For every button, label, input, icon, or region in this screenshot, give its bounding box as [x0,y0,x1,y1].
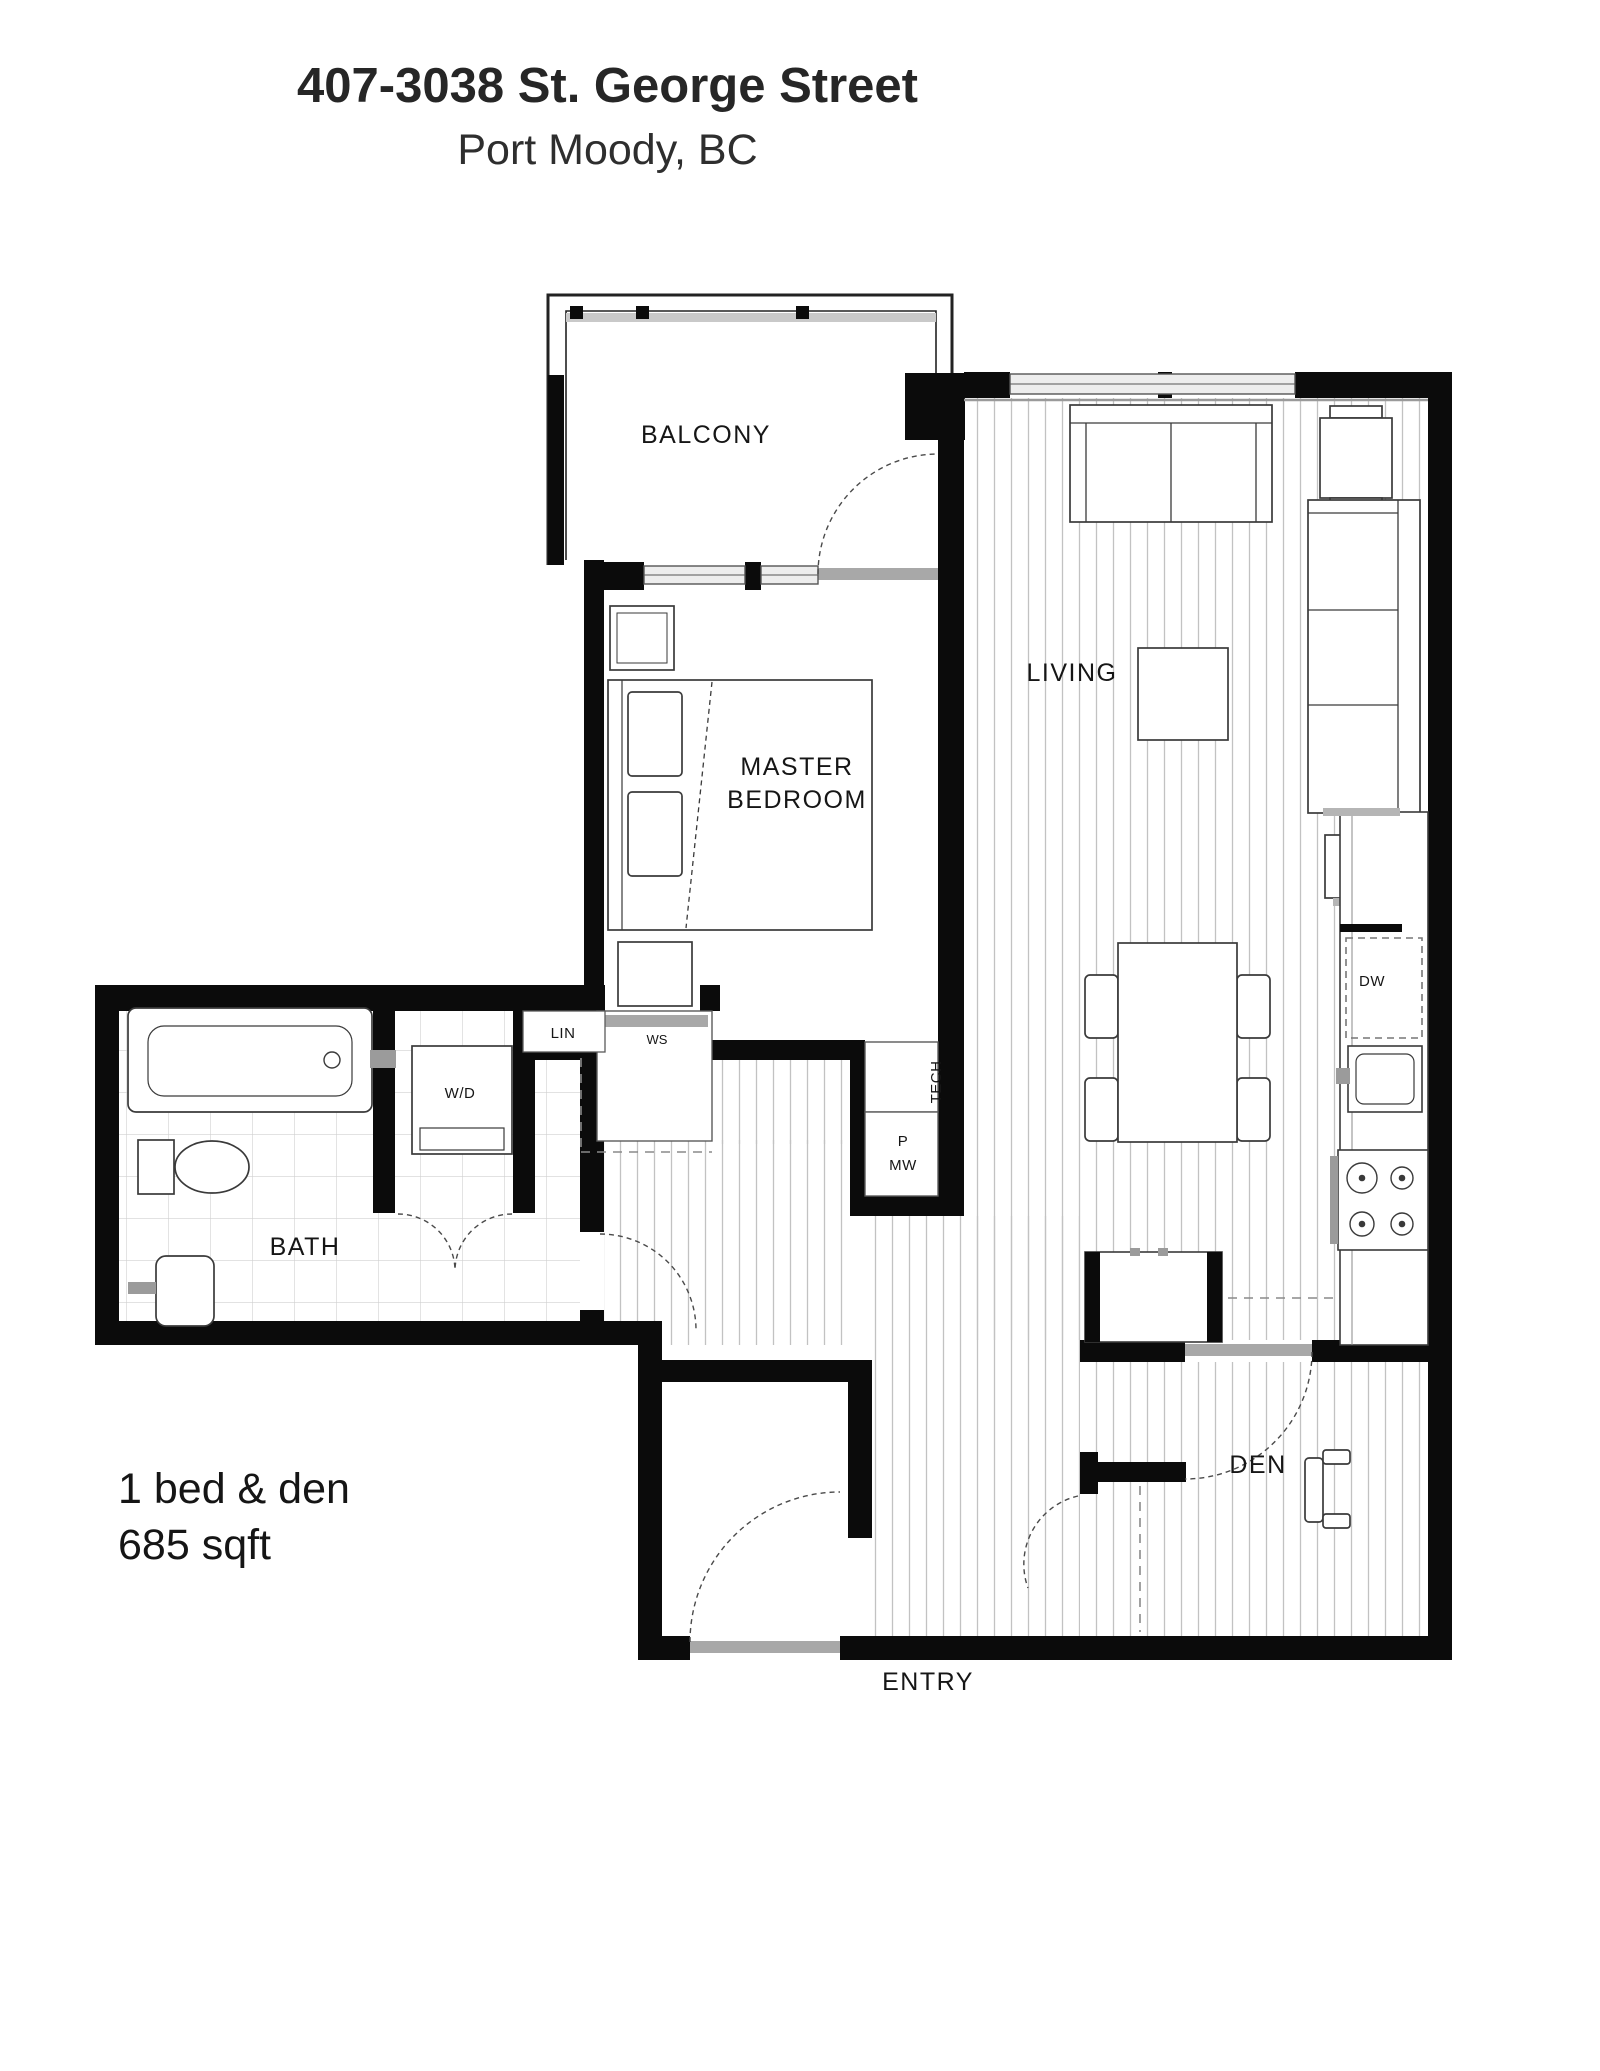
kitchen-sink-basin [1356,1054,1414,1104]
hallway-floor-upper [712,1060,848,1144]
dining-table [1118,943,1237,1142]
armchair [1320,418,1392,498]
den-floor [1090,1362,1428,1636]
ws-desk [604,1015,708,1027]
armchair-arm [1330,406,1382,418]
bedroom-bench [618,942,692,1006]
summary-sqft: 685 sqft [118,1518,350,1574]
entry-corridor-floor [872,1216,1080,1636]
coffee-table [1138,648,1228,740]
bathroom-sink [156,1256,214,1326]
bed-pillow [628,692,682,776]
summary-beds: 1 bed & den [118,1462,350,1518]
den-chair-arm [1323,1514,1350,1528]
floor-plan-drawing: BALCONY LIVING MASTER BEDROOM BATH DEN E… [0,0,1600,2071]
linen-label: LIN [551,1025,576,1042]
entry-door-slab [690,1641,840,1653]
hallway-floor [604,1140,848,1345]
sectional-sofa [1308,500,1420,813]
listing-summary: 1 bed & den 685 sqft [118,1462,350,1574]
living-floor [964,398,1340,1340]
entry-door-arc [690,1492,840,1642]
bathtub-basin [148,1026,352,1096]
sink-faucet [128,1282,156,1294]
bathtub-faucet [370,1050,396,1068]
stove [1338,1150,1428,1250]
balcony-door-slab [818,568,938,580]
balcony-living-pier [905,373,965,440]
washer-dryer-label: W/D [445,1085,476,1102]
dining-chair [1237,975,1270,1038]
dining-chair [1237,1078,1270,1141]
bed-pillow [628,792,682,876]
balcony-left-wall [548,375,564,565]
den-door-slab [1185,1344,1312,1356]
bathtub-drain [324,1052,340,1068]
toilet-bowl [175,1141,249,1193]
ws-label: WS [647,1032,668,1047]
oven-handle [1330,1156,1338,1244]
den-chair-arm [1323,1450,1350,1464]
balcony-door-arc [818,454,938,574]
pantry-mw-closet [865,1112,938,1196]
master-bedroom-label-line1: MASTER [740,753,853,781]
ws-nook [597,1011,712,1141]
pantry-label-line1: P [898,1133,909,1150]
right-exterior-wall [1428,372,1452,1660]
living-label: LIVING [1027,659,1118,687]
balcony-label: BALCONY [641,421,771,449]
toilet-tank [138,1140,174,1194]
dining-chair [1085,1078,1118,1141]
fridge [1085,1252,1222,1342]
bath-label: BATH [270,1233,341,1261]
pantry-label-line2: MW [889,1157,917,1174]
floor-plan-page: 407-3038 St. George Street Port Moody, B… [0,0,1600,2071]
den-label: DEN [1229,1451,1286,1479]
washer-dryer-drawer [420,1128,504,1150]
kitchen-faucet [1336,1068,1350,1084]
dishwasher-label: DW [1359,973,1385,990]
den-chair-back [1305,1458,1323,1522]
tech-label: TECH [928,1061,945,1104]
master-bedroom-label-line2: BEDROOM [727,786,867,814]
entry-label: ENTRY [882,1668,974,1696]
dining-chair [1085,975,1118,1038]
